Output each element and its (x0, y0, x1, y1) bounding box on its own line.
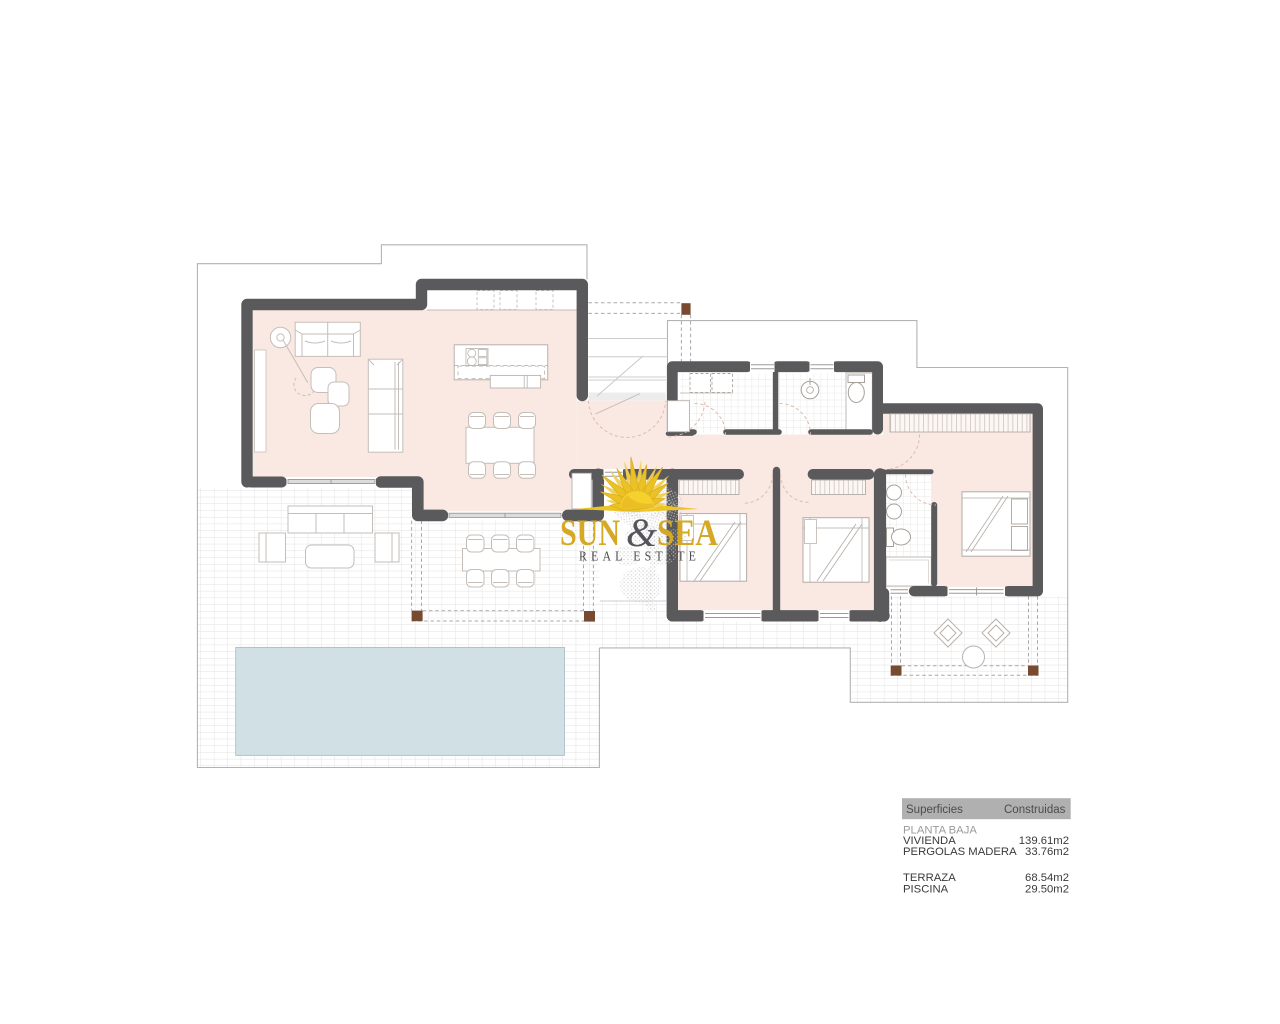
svg-text:Superficies: Superficies (906, 804, 963, 816)
svg-text:29.50m2: 29.50m2 (1025, 884, 1069, 896)
svg-text:SUN: SUN (560, 512, 620, 553)
svg-text:REAL ESTATE: REAL ESTATE (579, 549, 700, 564)
svg-text:68.54m2: 68.54m2 (1025, 872, 1069, 884)
svg-text:TERRAZA: TERRAZA (903, 872, 956, 884)
svg-text:PISCINA: PISCINA (903, 884, 949, 896)
svg-text:33.76m2: 33.76m2 (1025, 846, 1069, 858)
svg-text:SEA: SEA (657, 512, 719, 553)
svg-text:139.61m2: 139.61m2 (1019, 835, 1069, 847)
svg-text:PERGOLAS MADERA: PERGOLAS MADERA (903, 846, 1017, 858)
svg-text:VIVIENDA: VIVIENDA (903, 835, 956, 847)
svg-text:Construidas: Construidas (1004, 804, 1066, 816)
